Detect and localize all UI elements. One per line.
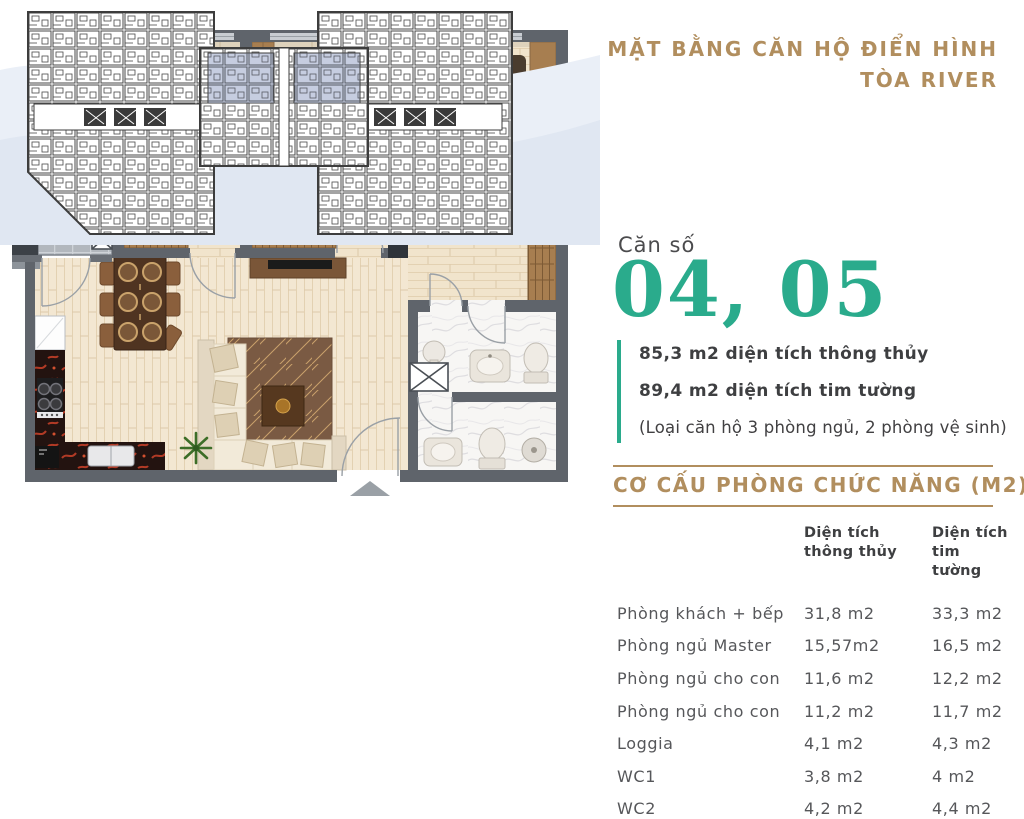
table-row: Phòng ngủ cho con 11,6 m2 12,2 m2 (613, 662, 1011, 695)
building-key-plan (0, 0, 600, 245)
header-thong-thuy: Diện tích thông thủy (804, 524, 932, 581)
key-plan-left-wing (28, 12, 214, 234)
toilet (479, 428, 505, 460)
table-row: Phòng ngủ Master 15,57m2 16,5 m2 (613, 630, 1011, 663)
key-plan-center (200, 48, 368, 166)
section-title: CƠ CẤU PHÒNG CHỨC NĂNG (M2) (613, 473, 1024, 497)
coffee-table (262, 386, 304, 426)
divider-line-top (613, 465, 993, 467)
table-row: Loggia 4,1 m2 4,3 m2 (613, 727, 1011, 760)
room-area-table: Diện tích thông thủy Diện tích tim tường… (613, 524, 1011, 819)
toilet (524, 343, 548, 373)
page-title-line2: TÒA RIVER (607, 65, 998, 96)
unit-info-block: 85,3 m2 diện tích thông thủy 89,4 m2 diệ… (617, 340, 1009, 443)
area-thong-thuy: 85,3 m2 diện tích thông thủy (639, 344, 1009, 364)
area-tim-tuong: 89,4 m2 diện tích tim tường (639, 381, 1009, 401)
header-spacer (613, 524, 804, 581)
page-title-line1: MẶT BẰNG CĂN HỘ ĐIỂN HÌNH (607, 34, 998, 65)
living-plant (181, 433, 211, 463)
table-header-row: Diện tích thông thủy Diện tích tim tường (613, 524, 1011, 581)
table-row: WC2 4,2 m2 4,4 m2 (613, 793, 1011, 819)
table-row: WC1 3,8 m2 4 m2 (613, 760, 1011, 793)
dining-set (100, 254, 183, 351)
unit-numbers: 04, 05 (612, 252, 888, 328)
table-row: Phòng ngủ cho con 11,2 m2 11,7 m2 (613, 695, 1011, 728)
entrance-arrow (350, 481, 390, 496)
dishwasher (35, 446, 59, 468)
table-row: Phòng khách + bếp 31,8 m2 33,3 m2 (613, 597, 1011, 630)
header-tim-tuong: Diện tích tim tường (932, 524, 1011, 581)
unit-type-note: (Loại căn hộ 3 phòng ngủ, 2 phòng vệ sin… (639, 418, 1009, 437)
brochure-page: MẶT BẰNG CĂN HỘ ĐIỂN HÌNH TÒA RIVER Căn … (0, 0, 1024, 819)
divider-line-bottom (613, 505, 993, 507)
tv (268, 260, 332, 269)
page-title: MẶT BẰNG CĂN HỘ ĐIỂN HÌNH TÒA RIVER (607, 34, 998, 96)
info-column: MẶT BẰNG CĂN HỘ ĐIỂN HÌNH TÒA RIVER Căn … (600, 0, 1012, 819)
